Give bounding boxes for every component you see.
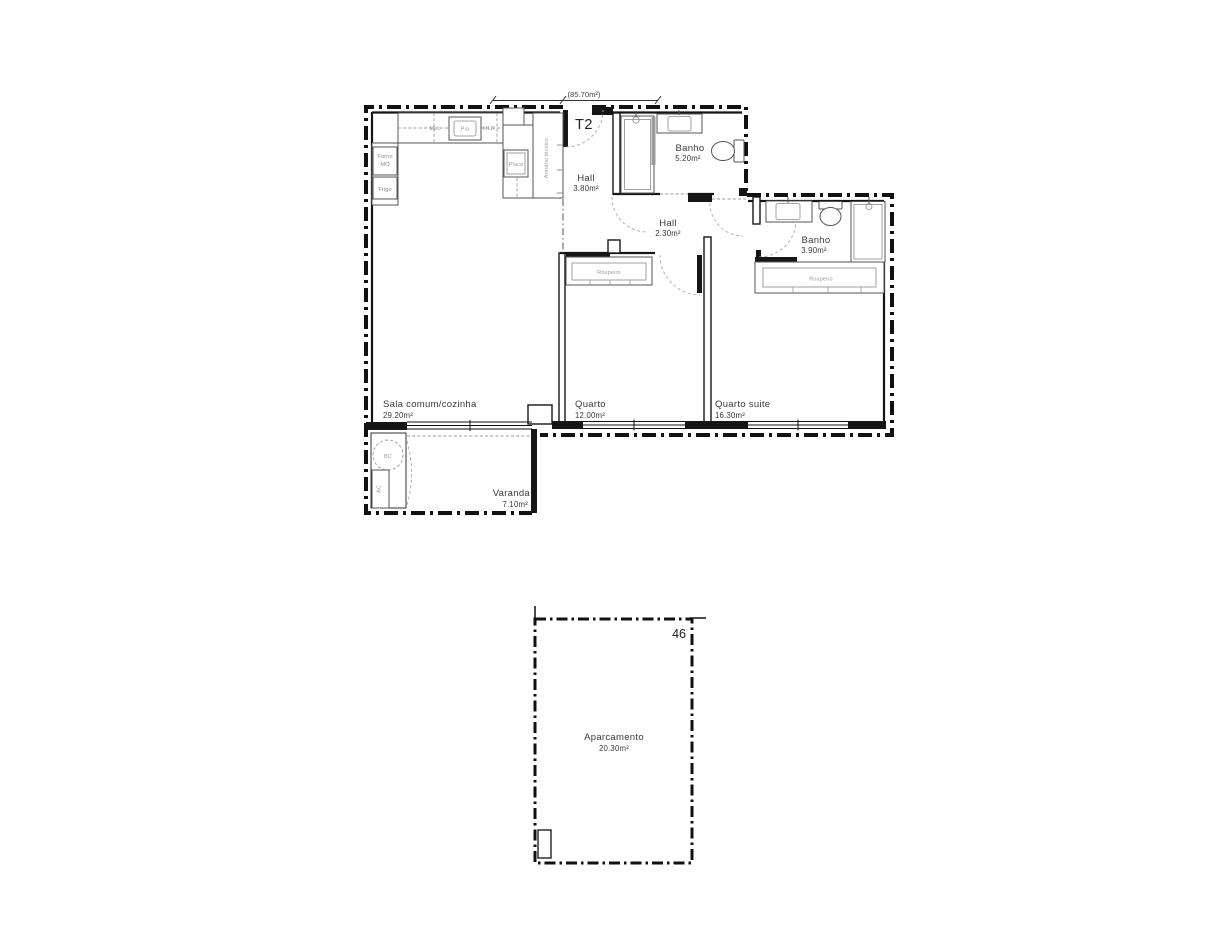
quarto-roupeiro: Roupeiro — [566, 254, 652, 285]
ac-unit: AC — [372, 470, 389, 508]
shower-screen — [652, 117, 656, 165]
banho1-door-arc — [612, 197, 647, 232]
room-labels: T2 Banho 5.20m² Hall 3.80m² Hall 2.30m² … — [383, 117, 830, 509]
parking-column — [538, 830, 551, 858]
parking-number: 46 — [672, 627, 686, 641]
suite-name: Quarto suite — [715, 399, 770, 410]
parking-area: 20.30m² — [599, 744, 629, 753]
roupeiro-label: Roupeiro — [597, 270, 620, 276]
ac-label: AC — [377, 485, 383, 493]
floor-plan-svg: (85.70m²) — [0, 0, 1227, 951]
parking-space: 46 Aparcamento 20.30m² — [535, 606, 706, 863]
shower-stall — [851, 197, 885, 262]
technical-cabinet: Armário técnico — [533, 113, 563, 198]
windows — [366, 420, 886, 432]
heat-pump-unit: BC — [373, 440, 403, 470]
parking-name: Aparcamento — [584, 732, 644, 743]
banho1-toilet — [712, 140, 745, 162]
hall2-name: Hall — [659, 218, 677, 229]
sink-label: Pia — [461, 127, 469, 133]
bathtub — [621, 111, 654, 193]
shaft-protrusion — [528, 405, 552, 424]
banho2-toilet — [819, 202, 842, 226]
washer-label: MLR — [483, 126, 495, 132]
total-area-label: (85.70m²) — [568, 90, 601, 99]
technical-cabinet-label: Armário técnico — [544, 138, 550, 178]
fridge-box: Frigo — [373, 177, 397, 199]
banho2-sink — [766, 197, 812, 222]
banho1-name: Banho — [676, 143, 705, 154]
varanda-area: 7.10m² — [503, 500, 529, 509]
boundary-step-notch — [739, 188, 747, 196]
doors — [407, 110, 796, 505]
entrance-jamb — [592, 107, 613, 115]
varanda-door-arc — [407, 441, 412, 505]
banho1-area: 5.20m² — [675, 154, 701, 163]
suite-corridor-door-arc — [710, 203, 743, 236]
hall2-area: 2.30m² — [655, 229, 681, 238]
suite-area: 16.30m² — [715, 411, 745, 420]
window-quarto — [583, 420, 685, 431]
hob-label: Placa — [509, 162, 524, 168]
banho2-door — [756, 220, 796, 258]
varanda-wall — [531, 429, 537, 513]
roupeiro-label: Roupeiro — [809, 277, 832, 283]
dishwasher-label: MLL — [429, 126, 440, 132]
sala-name: Sala comum/cozinha — [383, 399, 477, 410]
hall1-area: 3.80m² — [573, 184, 599, 193]
floor-plan-page: (85.70m²) — [0, 0, 1227, 951]
apartment-type-label: T2 — [575, 117, 593, 133]
oven-label-1: Forno — [377, 154, 392, 160]
oven-box: Forno MO — [373, 147, 397, 175]
window-sala — [407, 420, 532, 431]
banho2-name: Banho — [802, 235, 831, 246]
bc-label: BC — [384, 454, 392, 460]
varanda-name: Varanda — [493, 488, 531, 499]
suite-roupeiro: Roupeiro — [755, 257, 884, 293]
dimension-line: (85.70m²) — [490, 90, 661, 104]
kitchen-sink: Pia — [449, 117, 481, 140]
kitchen: Pia MLL MLR Forno MO Frigo Placa Armário… — [372, 108, 563, 205]
quarto-area: 12.00m² — [575, 411, 605, 420]
window-suite — [748, 420, 848, 431]
fridge-label: Frigo — [378, 187, 391, 193]
kitchen-shaft — [503, 108, 524, 125]
quarto-door — [660, 255, 702, 295]
banho2-area: 3.90m² — [801, 246, 827, 255]
hall1-name: Hall — [577, 173, 595, 184]
hob-box: Placa — [504, 150, 528, 177]
quarto-name: Quarto — [575, 399, 606, 410]
sala-area: 29.20m² — [383, 411, 413, 420]
oven-label-2: MO — [380, 162, 390, 168]
